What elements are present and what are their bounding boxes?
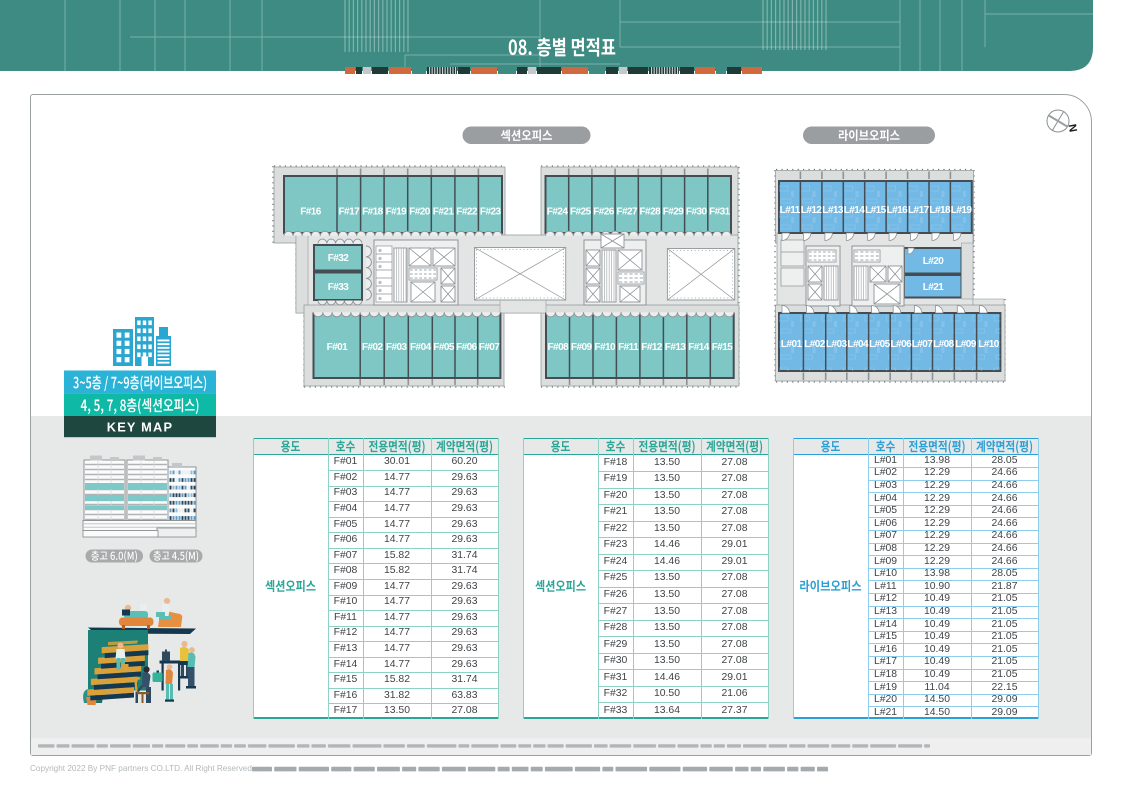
svg-text:F#27: F#27	[616, 207, 638, 218]
svg-text:F#01: F#01	[327, 342, 349, 353]
svg-text:F#20: F#20	[409, 207, 431, 218]
svg-text:F#03: F#03	[386, 342, 408, 353]
svg-text:L#04: L#04	[847, 339, 869, 350]
svg-text:F#07: F#07	[479, 342, 501, 353]
svg-text:F#25: F#25	[570, 207, 592, 218]
svg-text:F#10: F#10	[594, 342, 616, 353]
svg-text:L#17: L#17	[908, 205, 930, 216]
svg-text:F#23: F#23	[480, 207, 502, 218]
svg-text:F#21: F#21	[433, 207, 455, 218]
svg-text:F#11: F#11	[618, 342, 639, 353]
svg-text:F#19: F#19	[386, 207, 408, 218]
svg-text:F#04: F#04	[410, 342, 432, 353]
svg-text:L#05: L#05	[869, 339, 891, 350]
svg-text:L#16: L#16	[887, 205, 909, 216]
svg-text:L#01: L#01	[781, 339, 803, 350]
svg-text:F#05: F#05	[433, 342, 455, 353]
svg-text:F#29: F#29	[663, 207, 685, 218]
svg-text:F#09: F#09	[571, 342, 593, 353]
svg-text:L#11: L#11	[780, 205, 801, 216]
svg-text:L#15: L#15	[865, 205, 887, 216]
svg-text:F#32: F#32	[328, 253, 350, 264]
svg-text:L#10: L#10	[978, 339, 1000, 350]
svg-text:F#26: F#26	[593, 207, 615, 218]
svg-text:L#21: L#21	[923, 282, 945, 293]
svg-text:F#02: F#02	[362, 342, 384, 353]
svg-text:L#06: L#06	[891, 339, 913, 350]
svg-text:F#30: F#30	[686, 207, 708, 218]
svg-text:F#22: F#22	[456, 207, 478, 218]
svg-text:N: N	[1066, 123, 1079, 133]
svg-text:F#13: F#13	[665, 342, 687, 353]
svg-text:F#16: F#16	[300, 207, 322, 218]
svg-text:F#15: F#15	[712, 342, 734, 353]
svg-text:F#24: F#24	[547, 207, 569, 218]
svg-text:F#33: F#33	[328, 282, 350, 293]
svg-text:L#18: L#18	[929, 205, 951, 216]
svg-text:F#28: F#28	[640, 207, 662, 218]
svg-text:L#09: L#09	[955, 339, 977, 350]
svg-text:L#13: L#13	[822, 205, 844, 216]
svg-text:F#17: F#17	[339, 207, 361, 218]
svg-text:F#18: F#18	[362, 207, 384, 218]
svg-text:L#20: L#20	[923, 256, 945, 267]
svg-text:L#07: L#07	[912, 339, 934, 350]
svg-text:L#19: L#19	[951, 205, 973, 216]
svg-text:L#14: L#14	[844, 205, 866, 216]
svg-text:L#12: L#12	[801, 205, 823, 216]
svg-text:L#02: L#02	[804, 339, 826, 350]
svg-text:L#08: L#08	[933, 339, 955, 350]
svg-text:F#12: F#12	[641, 342, 663, 353]
svg-text:F#06: F#06	[456, 342, 478, 353]
svg-text:F#08: F#08	[548, 342, 570, 353]
svg-text:F#14: F#14	[688, 342, 710, 353]
svg-text:L#03: L#03	[826, 339, 848, 350]
svg-text:F#31: F#31	[709, 207, 731, 218]
